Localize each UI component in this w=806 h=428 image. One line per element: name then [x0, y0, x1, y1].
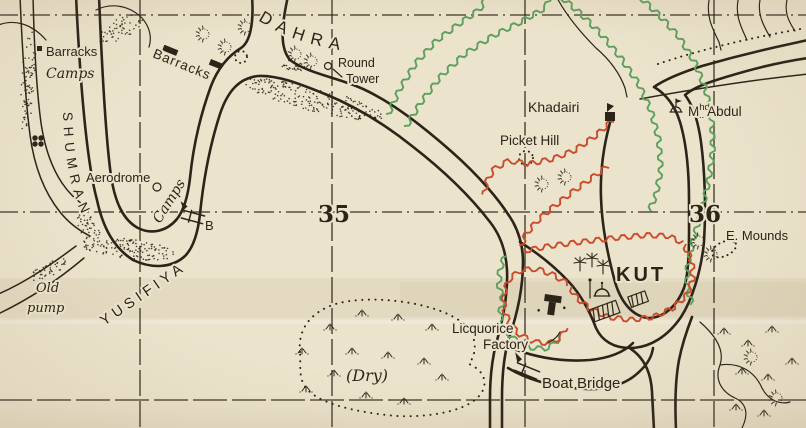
- label-e-mounds: E. Mounds: [726, 228, 789, 243]
- label-mhd-abdul: Mhd..Abdul: [688, 102, 742, 121]
- label-round-tower-2: Tower: [346, 72, 379, 86]
- map-viewport: Barracks Camps Barracks SHUMRAN DAHRA Ro…: [0, 0, 806, 428]
- label-kut: KUT: [616, 264, 666, 286]
- label-grid-36: 36: [689, 201, 721, 228]
- label-khadairi: Khadairi: [528, 99, 579, 115]
- label-round-tower-1: Round: [338, 56, 375, 70]
- label-bridge-b: B: [205, 218, 214, 233]
- barracks-block-icon: [37, 46, 42, 51]
- label-old-pump-2: pump: [27, 301, 65, 316]
- paper-background: [0, 0, 806, 428]
- label-dry: (Dry): [346, 366, 388, 385]
- label-camps-west: Camps: [46, 66, 94, 82]
- label-old-pump-1: Old: [36, 281, 59, 296]
- map-canvas: Barracks Camps Barracks SHUMRAN DAHRA Ro…: [0, 0, 806, 428]
- label-boat-bridge: Boat Bridge: [542, 375, 620, 392]
- label-aerodrome: Aerodrome: [86, 170, 150, 185]
- label-grid-35: 35: [318, 201, 350, 228]
- label-licquorice-1: Licquorice: [452, 321, 514, 336]
- label-licquorice-2: Factory: [483, 337, 528, 352]
- label-picket-hill: Picket Hill: [500, 133, 559, 148]
- label-barracks-west: Barracks: [46, 44, 98, 59]
